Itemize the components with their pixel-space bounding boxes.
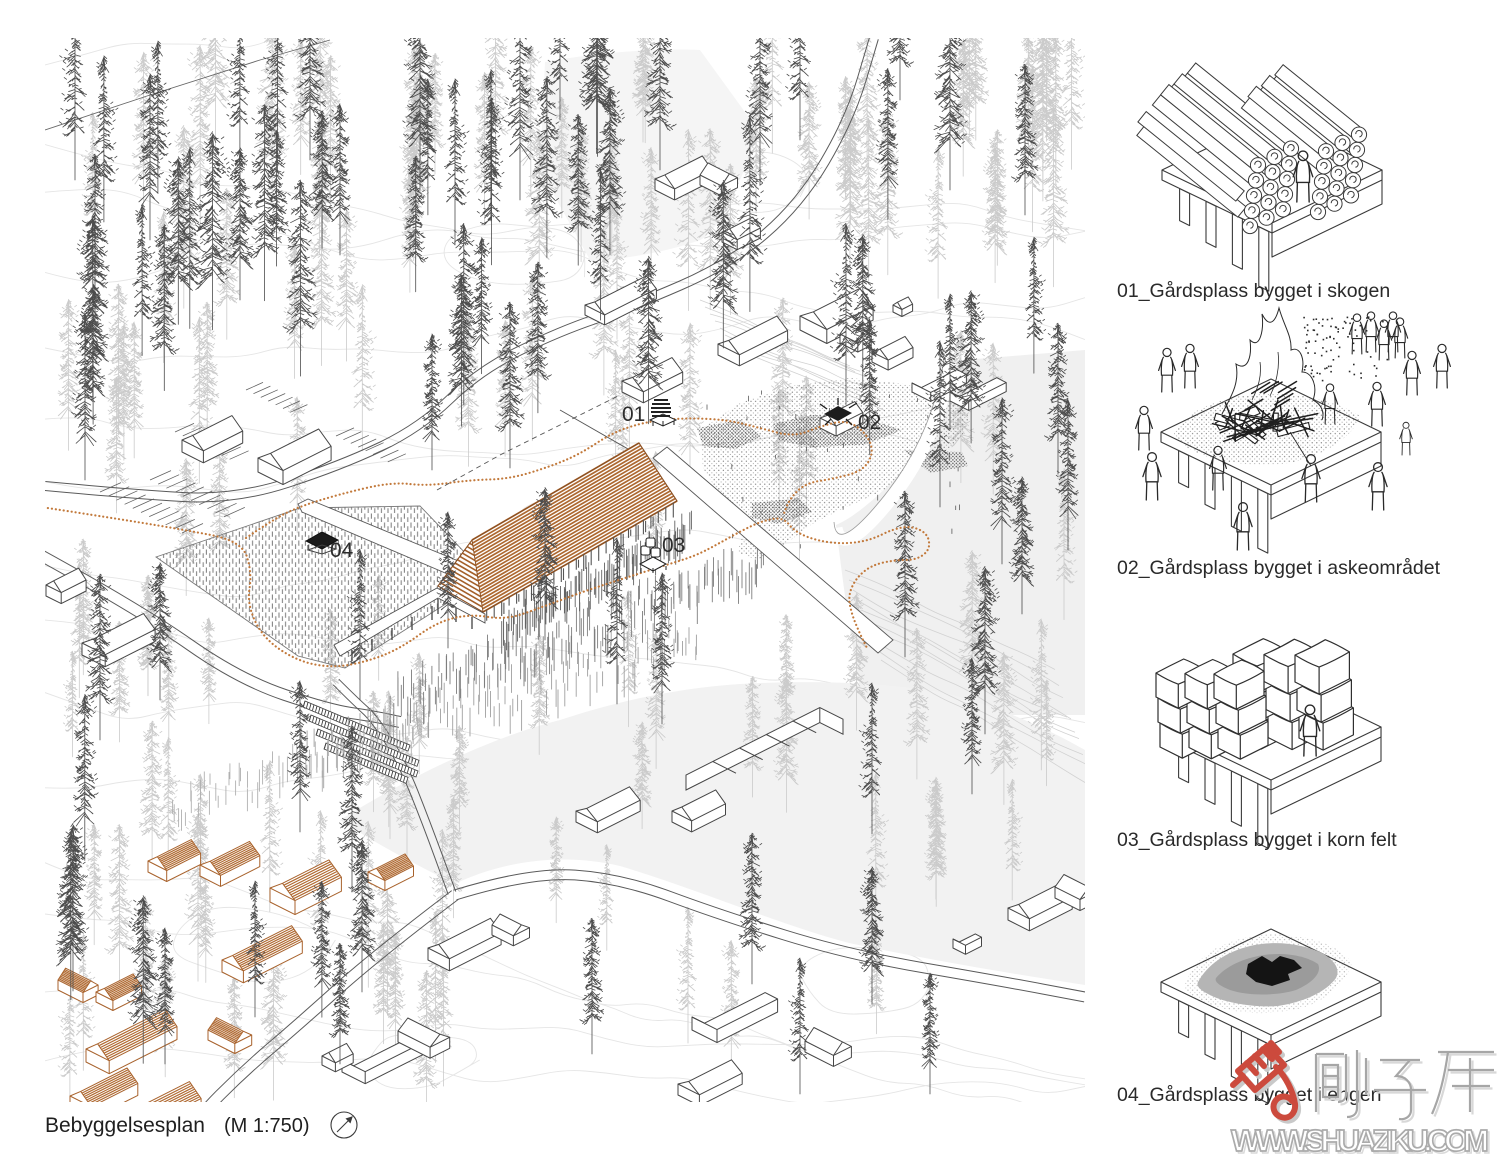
svg-text:02: 02 <box>858 411 881 434</box>
svg-text:01: 01 <box>622 403 645 426</box>
svg-text:01_Gårdsplass bygget i skogen: 01_Gårdsplass bygget i skogen <box>1117 280 1390 302</box>
svg-text:WWW.SHUAZIKU.COM: WWW.SHUAZIKU.COM <box>1231 1123 1489 1158</box>
svg-text:02_Gårdsplass bygget i askeomr: 02_Gårdsplass bygget i askeområdet <box>1117 557 1441 579</box>
svg-text:(M 1:750): (M 1:750) <box>224 1115 310 1137</box>
svg-text:04: 04 <box>330 539 354 562</box>
svg-text:03: 03 <box>662 534 685 557</box>
svg-text:03_Gårdsplass bygget i korn fe: 03_Gårdsplass bygget i korn felt <box>1117 829 1397 851</box>
svg-text:Bebyggelsesplan: Bebyggelsesplan <box>45 1114 205 1137</box>
